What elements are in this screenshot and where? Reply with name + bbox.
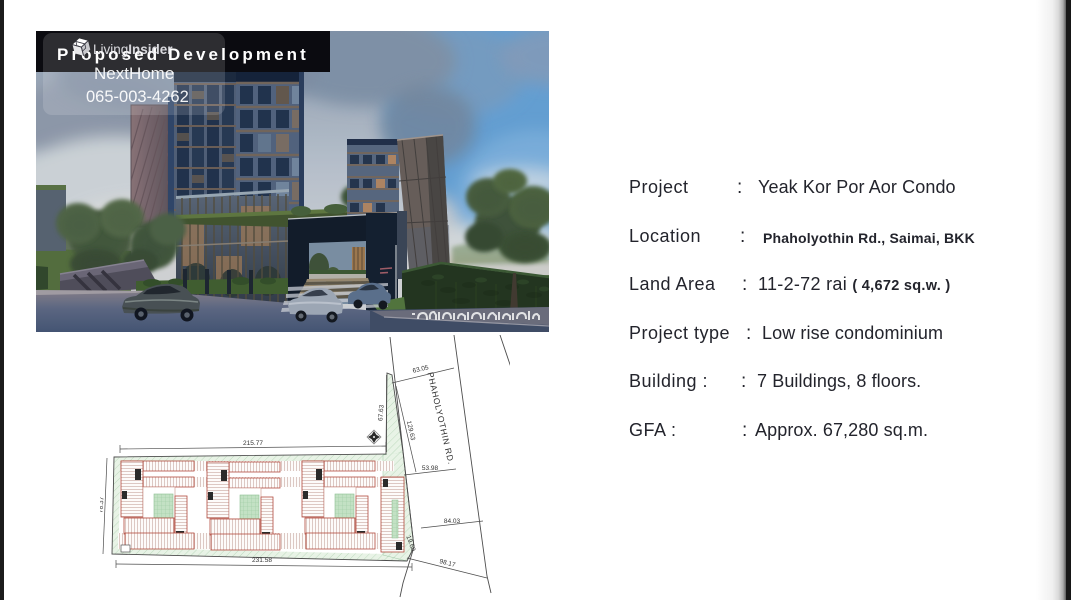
- svg-text:98.17: 98.17: [439, 558, 457, 569]
- svg-text:67.63: 67.63: [377, 404, 385, 421]
- svg-text:215.77: 215.77: [243, 440, 263, 447]
- svg-text:84.03: 84.03: [444, 518, 461, 525]
- svg-text:231.58: 231.58: [252, 557, 272, 564]
- svg-text:PHAHOLYOTHIN RD.: PHAHOLYOTHIN RD.: [425, 371, 456, 465]
- svg-text:53.98: 53.98: [422, 465, 439, 472]
